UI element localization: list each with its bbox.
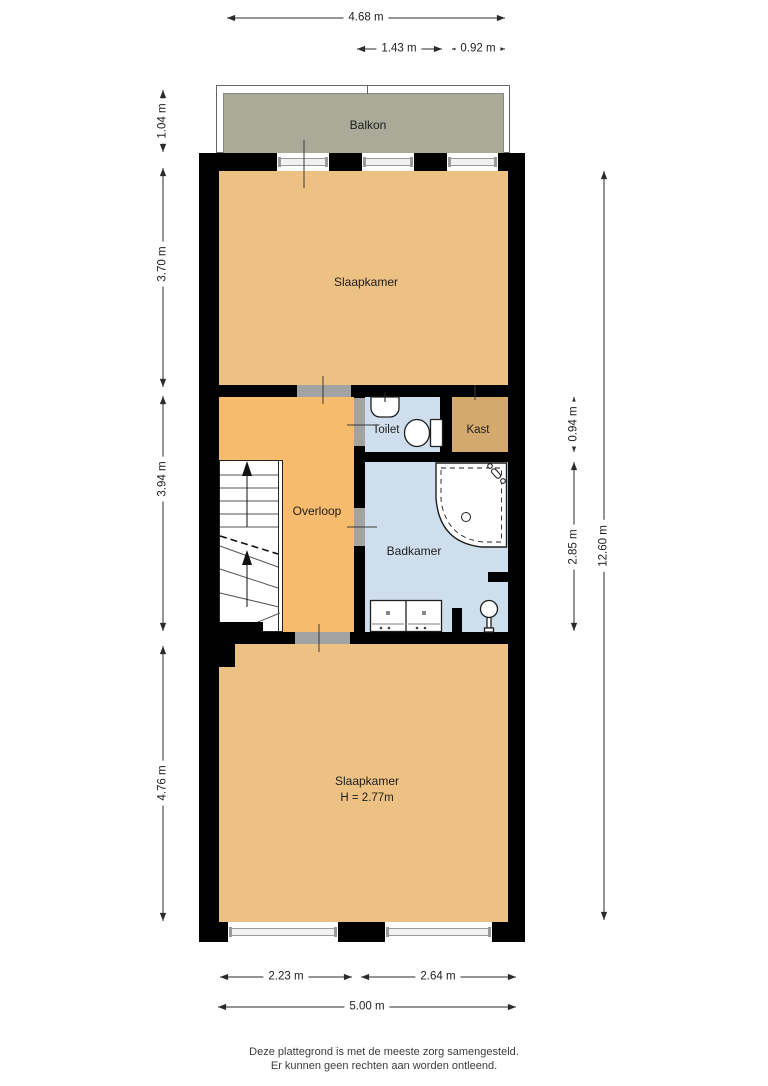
disclaimer: Deze plattegrond is met de meeste zorg s…: [0, 1045, 768, 1073]
wall-toilet-kast: [440, 385, 452, 462]
label-badkamer: Badkamer: [387, 544, 442, 558]
door-opening-toilet: [354, 398, 365, 446]
dim-toilet-depth: 0.94 m: [568, 401, 581, 446]
floorplan-canvas: Balkon Slaapkamer Toilet Kast Overloop B…: [0, 0, 768, 1086]
label-balkon: Balkon: [350, 118, 387, 132]
window-top-3: [447, 153, 498, 171]
wall-corner-block: [219, 644, 235, 667]
dim-bottom-right: 2.64 m: [415, 971, 460, 984]
dim-middle-depth: 3.94 m: [157, 456, 170, 501]
dim-bottom-total: 5.00 m: [344, 1001, 389, 1014]
wall-left: [199, 153, 219, 942]
label-slaapkamer-bottom: Slaapkamer: [335, 774, 399, 788]
door-opening-bedroom-top: [297, 385, 351, 397]
window-bottom-1: [228, 922, 338, 942]
dim-balcony-door: 1.43 m: [376, 43, 421, 56]
door-opening-bedroom-bottom: [295, 632, 350, 644]
window-glyph: [388, 928, 489, 936]
disclaimer-line-2: Er kunnen geen rechten aan worden ontlee…: [0, 1059, 768, 1073]
dim-balcony-window: 0.92 m: [455, 43, 500, 56]
dim-slaapkamer-bottom-depth: 4.76 m: [157, 760, 170, 805]
window-top-1: [277, 153, 329, 171]
window-glyph: [231, 928, 335, 936]
label-toilet: Toilet: [373, 424, 400, 436]
dim-total-depth: 12.60 m: [598, 520, 611, 572]
dim-bottom-left: 2.23 m: [263, 971, 308, 984]
window-bottom-2: [385, 922, 492, 942]
disclaimer-line-1: Deze plattegrond is met de meeste zorg s…: [0, 1045, 768, 1059]
window-glyph: [450, 158, 495, 166]
door-opening-badkamer: [354, 508, 365, 546]
balcony-railing-divider: [367, 86, 368, 94]
wall-toilet-badkamer: [354, 452, 508, 462]
wall-hall-bedroom-bottom-thick: [199, 622, 263, 632]
window-glyph: [280, 158, 326, 166]
wall-right: [508, 153, 525, 942]
dim-total-width-top: 4.68 m: [343, 12, 388, 25]
label-slaapkamer-top: Slaapkamer: [334, 275, 398, 289]
label-kast: Kast: [466, 424, 489, 436]
label-overloop: Overloop: [293, 504, 342, 518]
wall-stub-shower-right: [488, 572, 508, 582]
dim-slaapkamer-top-depth: 3.70 m: [157, 241, 170, 286]
wall-hall-bedroom-bottom: [199, 632, 525, 644]
window-top-2: [362, 153, 414, 171]
label-slaapkamer-bottom-height: H = 2.77m: [340, 792, 393, 804]
dim-badkamer-depth: 2.85 m: [568, 524, 581, 569]
window-glyph: [365, 158, 411, 166]
wall-stub-vanity: [452, 608, 462, 632]
dim-balkon-depth: 1.04 m: [157, 98, 170, 143]
